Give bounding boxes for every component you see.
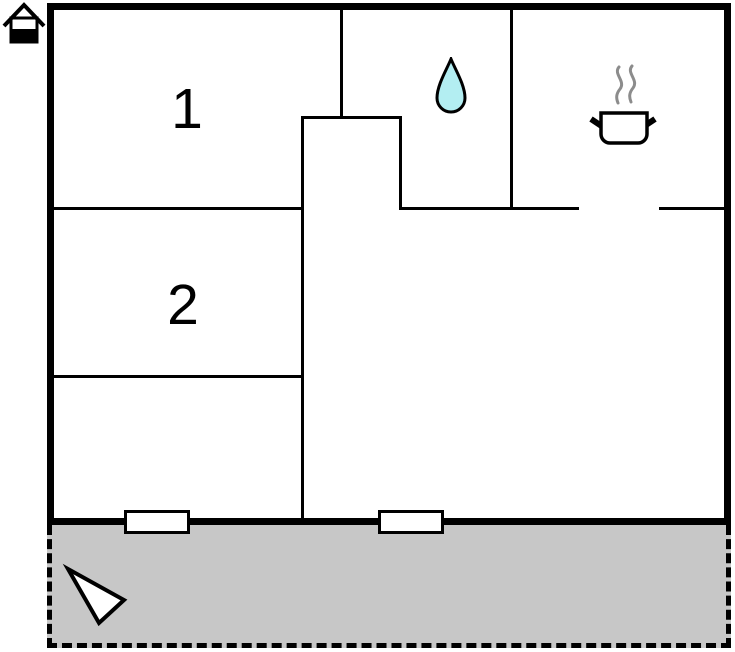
- house-icon: [2, 2, 46, 46]
- wall: [54, 207, 304, 210]
- wall: [510, 10, 513, 210]
- wall: [399, 207, 579, 210]
- wall: [399, 116, 402, 210]
- wall: [54, 375, 304, 378]
- wall: [301, 116, 304, 518]
- wall: [659, 207, 724, 210]
- window: [124, 510, 190, 534]
- floorplan-canvas: 1 2: [0, 0, 735, 652]
- wall: [301, 116, 402, 119]
- water-drop-icon: [434, 57, 468, 115]
- cooking-pot-icon: [586, 62, 660, 146]
- room-2-label: 2: [151, 277, 215, 334]
- window: [378, 510, 444, 534]
- room-1-label: 1: [155, 81, 219, 138]
- north-arrow-icon: [60, 560, 132, 632]
- wall: [340, 10, 343, 118]
- terrace: [47, 525, 731, 648]
